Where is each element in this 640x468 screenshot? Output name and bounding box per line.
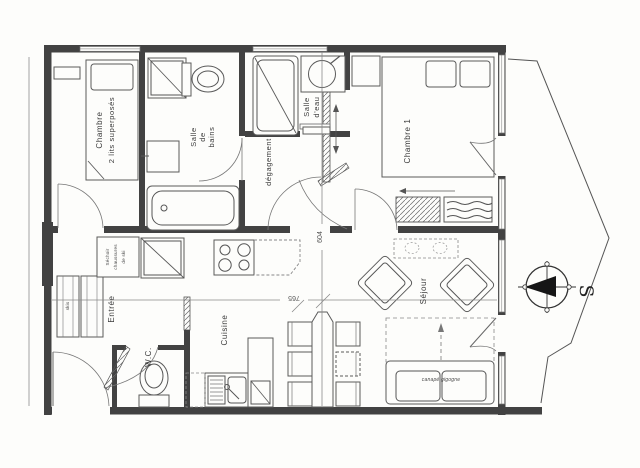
shower <box>148 58 186 98</box>
dimension-depth: 604 <box>317 231 324 243</box>
armchair-2 <box>439 257 496 314</box>
balcony-door2-leaf <box>470 318 496 347</box>
balcony <box>508 59 609 403</box>
window-top-chambre2 <box>80 47 140 52</box>
balcony-door1-opening <box>498 136 507 176</box>
room-label-salle-eau-line1: Salle <box>302 97 311 117</box>
annotation-sechoir-line1: Séchoir <box>105 248 110 265</box>
compass-south-label: S <box>575 284 597 297</box>
storage-unit <box>141 238 184 278</box>
room-label-sdb-line2: de <box>198 132 207 142</box>
room-label-sdb-line1: Salle <box>189 127 198 147</box>
room-label-degagement: dégagement <box>264 138 273 186</box>
stove <box>214 240 254 275</box>
tall-cabinet <box>248 338 273 407</box>
shower2 <box>253 56 298 135</box>
compass-needle <box>525 276 556 297</box>
floor-plan-page: S <box>0 0 640 468</box>
dimension-width: 765 <box>288 294 300 301</box>
toilet <box>182 63 224 96</box>
boot-dryer <box>97 237 139 277</box>
room-chambre1 <box>333 56 496 230</box>
room-label-sdb-line3: bains <box>207 127 216 148</box>
balcony-door2-opening <box>498 315 507 352</box>
console-dashed <box>394 239 458 258</box>
armchair-1 <box>357 255 414 312</box>
sliding-door-arrow <box>333 104 339 154</box>
annotation-skis: skis <box>65 301 70 310</box>
double-bed <box>382 57 494 177</box>
entree-cuisine-door-panel <box>184 297 190 330</box>
room-sejour <box>288 239 496 407</box>
sink-unit <box>205 373 249 407</box>
room-salle-eau <box>253 56 345 135</box>
round-washbasin <box>301 56 345 92</box>
floor-plan-svg: S <box>0 0 640 468</box>
room-label-chambre2-line1: Chambre <box>95 111 104 148</box>
sliding-door-wall <box>323 88 330 182</box>
dining-chairs <box>288 322 360 406</box>
ski-locker <box>57 276 103 337</box>
annotation-sechoir-line3: de ski <box>121 250 126 263</box>
bedside-unit <box>352 56 380 86</box>
room-label-wc: W.C. <box>144 347 153 367</box>
radiator <box>444 197 492 222</box>
room-label-cuisine: Cuisine <box>220 315 229 346</box>
annotation-sechoir-line2: chaussures <box>113 244 118 270</box>
room-label-salle-eau-line2: d'eau <box>312 96 321 117</box>
room-label-sejour: Séjour <box>419 278 428 305</box>
annotation-sofa-bed: canapé gigogne <box>422 377 460 383</box>
dining-table <box>312 312 333 407</box>
room-label-chambre2-line2: 2 lits superposés <box>107 97 116 163</box>
counter-outline <box>254 240 300 275</box>
washbasin <box>141 141 179 172</box>
degagement-doors <box>268 163 349 230</box>
sofa-bed <box>386 318 494 404</box>
room-label-entree: Entrée <box>107 295 116 322</box>
bathtub <box>147 186 239 230</box>
window-top-salle-eau <box>253 47 327 52</box>
room-label-chambre1: Chambre 1 <box>403 119 412 164</box>
room-cuisine <box>186 240 300 407</box>
shelf <box>54 67 80 79</box>
shelf2 <box>303 127 330 134</box>
wc-toilet <box>139 361 169 407</box>
entry-door-opening <box>52 407 110 416</box>
